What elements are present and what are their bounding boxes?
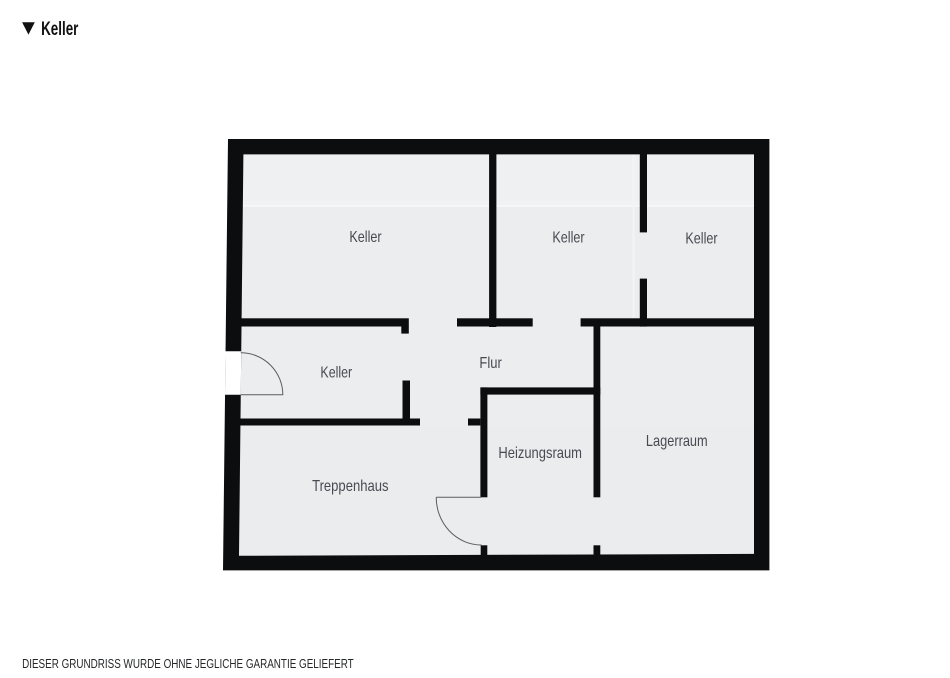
svg-text:Keller: Keller (685, 231, 717, 248)
svg-text:Heizungsraum: Heizungsraum (498, 445, 582, 462)
svg-text:Keller: Keller (552, 230, 584, 247)
svg-text:Flur: Flur (479, 355, 501, 372)
svg-text:Keller: Keller (320, 365, 352, 382)
svg-text:DIESER GRUNDRISS WURDE OHNE JE: DIESER GRUNDRISS WURDE OHNE JEGLICHE GAR… (22, 657, 354, 671)
svg-text:Keller: Keller (349, 229, 381, 246)
svg-text:Lagerraum: Lagerraum (646, 433, 708, 450)
svg-text:Keller: Keller (41, 18, 79, 40)
svg-text:Treppenhaus: Treppenhaus (312, 478, 388, 495)
